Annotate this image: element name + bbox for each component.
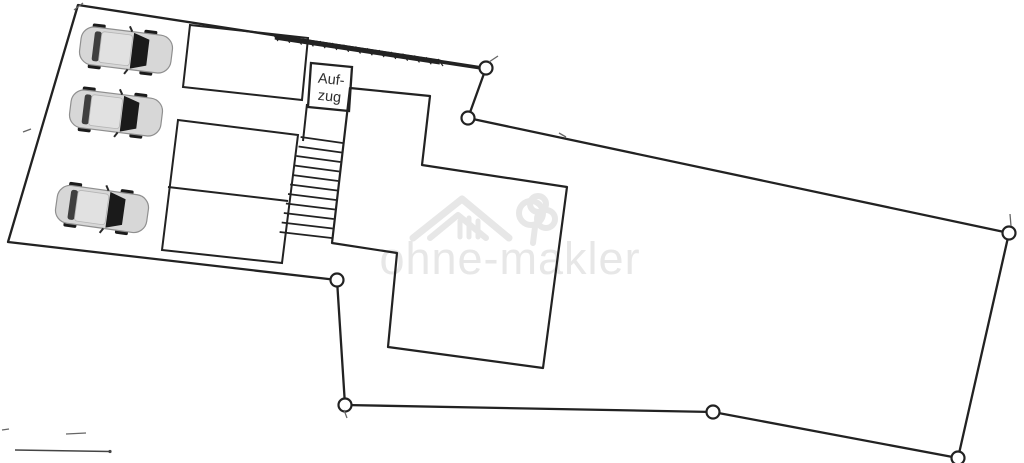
stray-mark (2, 429, 9, 430)
boundary-vertex-marker (331, 274, 344, 287)
elevator-label-line2: zug (317, 88, 342, 106)
stair-rail (303, 104, 307, 141)
stairs (280, 104, 343, 238)
boundary-vertex-marker (952, 452, 965, 463)
boundary-vertex-marker (1003, 227, 1016, 240)
car-top-view-icon (77, 21, 174, 80)
stair-step (286, 204, 335, 210)
watermark-text: ohne-makler (379, 233, 640, 284)
elevator-label-line1: Auf- (317, 71, 345, 90)
stair-step (299, 147, 342, 153)
site-plan-canvas: ohne-makler Auf- zug (0, 0, 1024, 463)
watermark: ohne-makler (379, 196, 640, 284)
car-roof (88, 94, 123, 129)
scale-bar-end-tick (108, 450, 111, 453)
boundary-vertex-marker (707, 406, 720, 419)
building-outline (332, 88, 567, 368)
stair-step (301, 137, 343, 143)
car-mirror-icon (124, 69, 128, 74)
stair-step (296, 156, 340, 162)
room-mid-rect (162, 120, 298, 263)
boundary-vertex-marker (462, 112, 475, 125)
stray-mark (1010, 214, 1011, 226)
car-mirror-icon (114, 132, 118, 137)
stair-step (284, 213, 334, 219)
boundary-vertex-marker (339, 399, 352, 412)
stair-step (280, 232, 332, 238)
scale-bar (15, 450, 110, 452)
stair-step (292, 175, 338, 181)
stair-step (294, 166, 339, 172)
stray-mark (66, 433, 86, 434)
stair-step (288, 194, 336, 200)
car-top-view-icon (67, 84, 164, 143)
room-divider-line (168, 187, 288, 201)
boundary-vertex-marker (480, 62, 493, 75)
stair-step (282, 223, 333, 229)
room-top-rect (183, 25, 308, 100)
elevator-label: Auf- zug (315, 71, 345, 107)
car-mirror-icon (100, 228, 104, 233)
car-roof (98, 31, 133, 66)
stray-mark (23, 129, 31, 132)
car-top-view-icon (53, 179, 151, 239)
floor-plan-page: ohne-makler Auf- zug (0, 0, 1024, 463)
car-roof (74, 190, 109, 225)
stray-mark (489, 56, 498, 62)
stair-step (290, 185, 337, 191)
